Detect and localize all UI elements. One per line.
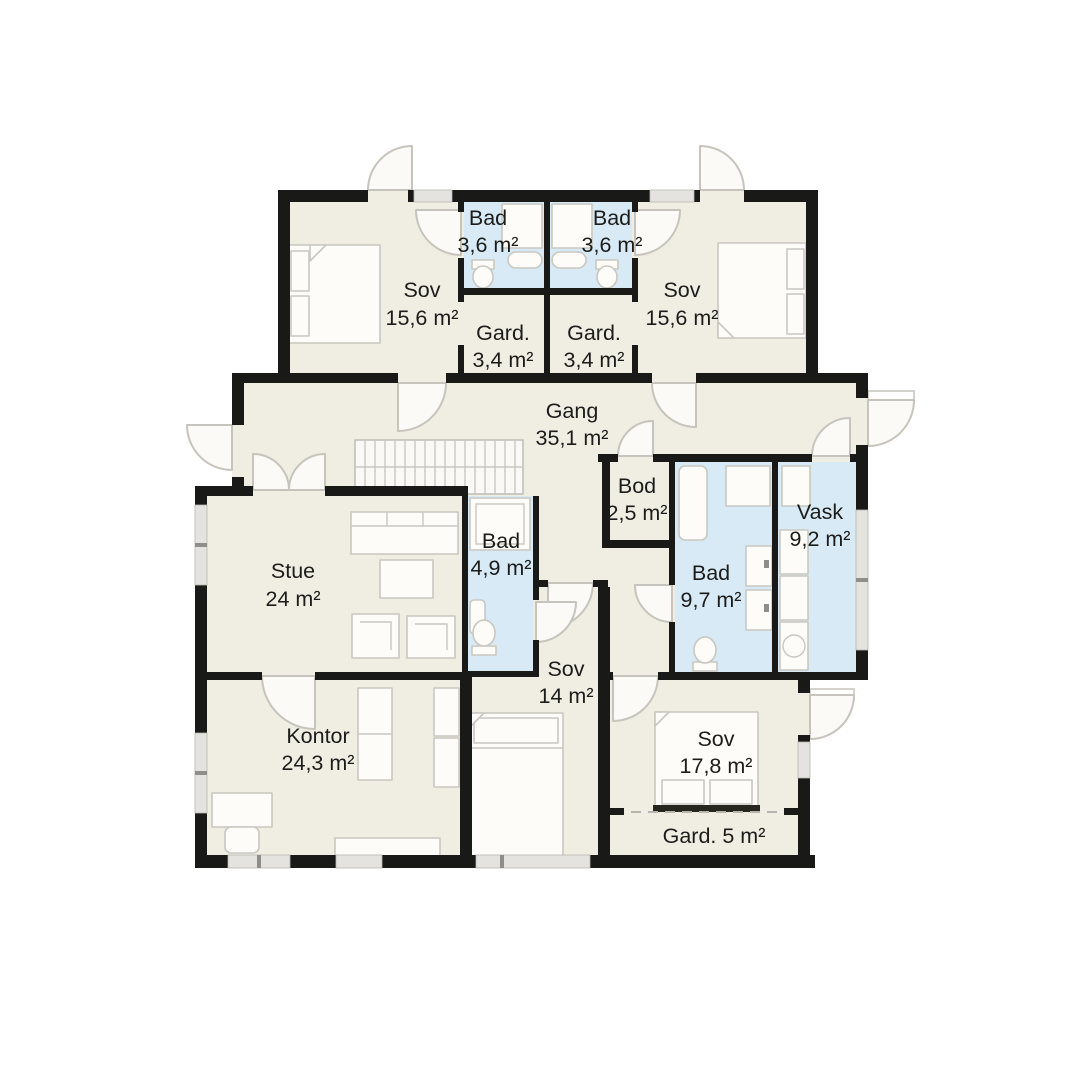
room-area-kontor: 24,3 m² — [282, 751, 355, 775]
cabinet-icon — [434, 688, 459, 787]
floor-plan-page: Sov 15,6 m² Bad 3,6 m² Bad 3,6 m² Gard. … — [0, 0, 1080, 1080]
floor-plan: Sov 15,6 m² Bad 3,6 m² Bad 3,6 m² Gard. … — [0, 0, 1080, 1080]
door-arc — [368, 146, 412, 190]
toilet-icon — [472, 260, 494, 288]
room-area-bod: 2,5 m² — [607, 501, 668, 525]
room-area-sov-mid: 14 m² — [539, 684, 594, 708]
room-area-bad-small: 4,9 m² — [471, 556, 532, 580]
coffee-table-icon — [380, 560, 433, 598]
door-arc — [187, 425, 232, 470]
room-label-kontor: Kontor — [286, 724, 349, 748]
room-area-sov-se: 17,8 m² — [680, 754, 753, 778]
shower-icon — [726, 466, 770, 506]
door-arc — [868, 400, 914, 446]
stairs — [355, 440, 523, 494]
sideboard-icon — [335, 838, 440, 857]
room-area-gard-w: 3,4 m² — [473, 348, 534, 372]
room-label-gard-w: Gard. — [476, 321, 530, 345]
room-label-vask: Vask — [797, 500, 843, 524]
bed-icon — [470, 713, 563, 857]
armchair-icon — [407, 616, 455, 658]
room-area-bad-ne: 3,6 m² — [582, 233, 643, 257]
room-label-sov-se: Sov — [697, 727, 734, 751]
shelf-icon — [358, 688, 392, 780]
room-label-bad-mid: Bad — [692, 561, 730, 585]
room-area-gard-e: 3,4 m² — [564, 348, 625, 372]
door-arc — [810, 695, 854, 739]
bathtub-icon — [679, 466, 707, 540]
window — [414, 190, 452, 202]
room-label-sov-nw: Sov — [403, 278, 440, 302]
window — [336, 855, 382, 868]
toilet-icon — [693, 637, 717, 671]
toilet-icon — [472, 620, 496, 655]
washer-icon — [780, 530, 808, 670]
door-arc — [700, 146, 744, 190]
room-label-gard-s: Gard. 5 m² — [663, 824, 766, 848]
room-area-bad-mid: 9,7 m² — [681, 588, 742, 612]
room-label-sov-ne: Sov — [663, 278, 700, 302]
sofa-icon — [351, 512, 458, 554]
room-label-bod: Bod — [618, 474, 656, 498]
room-area-sov-ne: 15,6 m² — [646, 306, 719, 330]
room-label-bad-small: Bad — [482, 529, 520, 553]
window — [798, 742, 810, 778]
room-label-bad-nw: Bad — [469, 206, 507, 230]
window — [476, 855, 590, 868]
window — [650, 190, 694, 202]
room-area-gang: 35,1 m² — [536, 426, 609, 450]
bed-icon — [718, 243, 806, 338]
armchair-icon — [352, 614, 399, 658]
room-label-stue: Stue — [271, 559, 315, 583]
room-label-gang: Gang — [546, 399, 599, 423]
room-label-gard-e: Gard. — [567, 321, 621, 345]
room-area-stue: 24 m² — [266, 587, 321, 611]
room-area-sov-nw: 15,6 m² — [386, 306, 459, 330]
room-label-bad-ne: Bad — [593, 206, 631, 230]
bed-icon — [287, 245, 380, 343]
room-label-sov-mid: Sov — [547, 657, 584, 681]
room-area-bad-nw: 3,6 m² — [458, 233, 519, 257]
toilet-icon — [596, 260, 618, 288]
room-area-vask: 9,2 m² — [790, 527, 851, 551]
